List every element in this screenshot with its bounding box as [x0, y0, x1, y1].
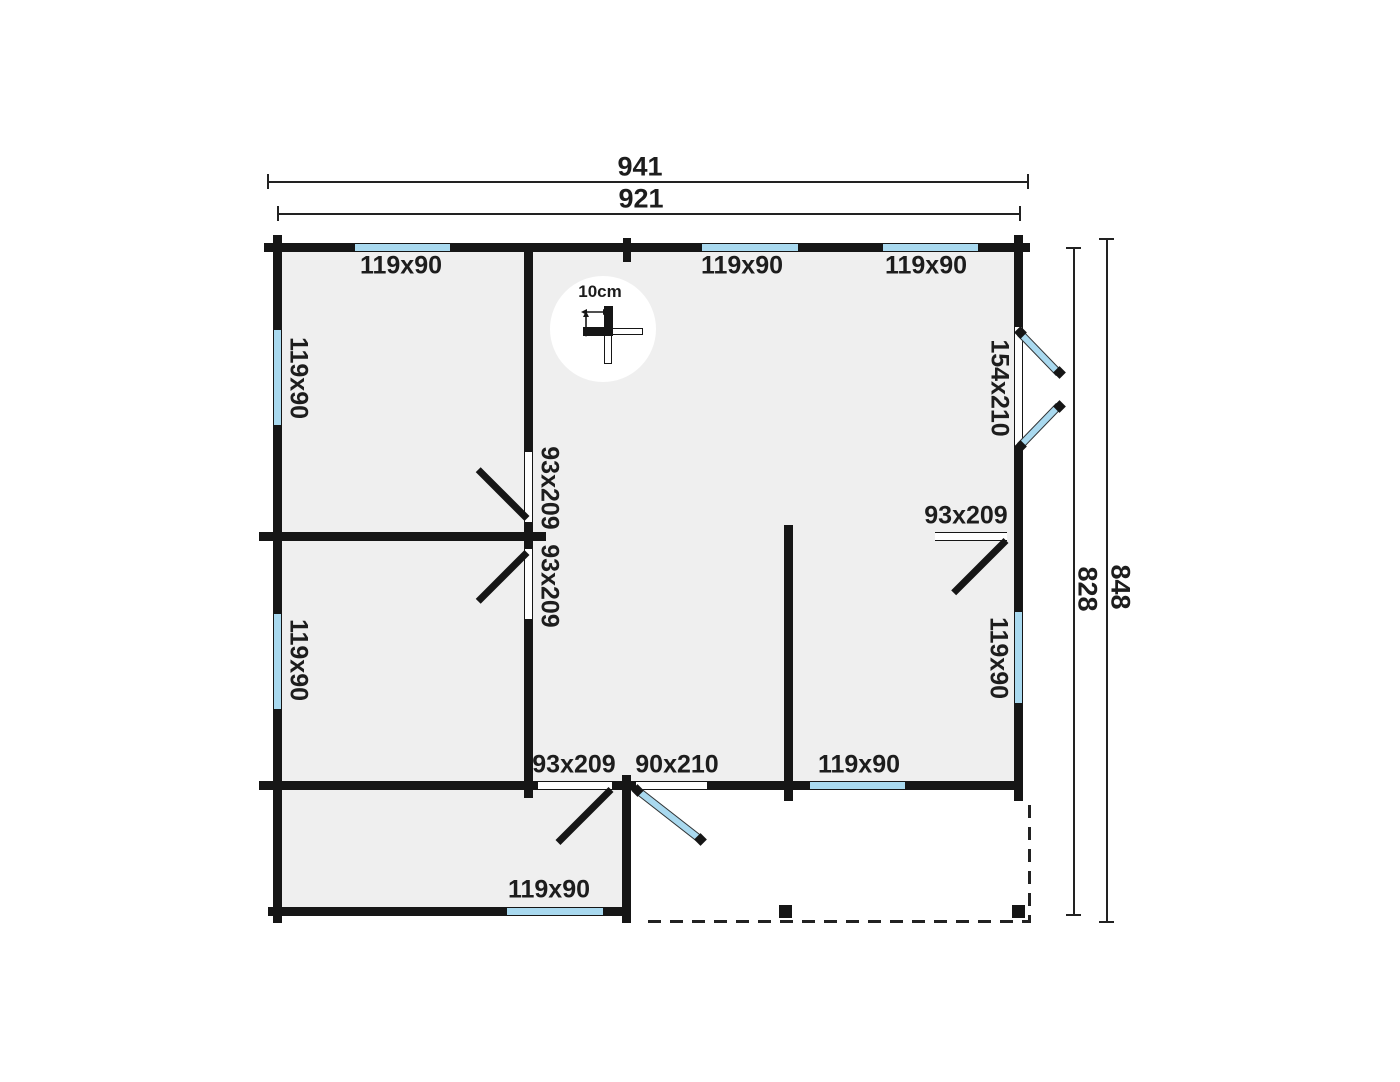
window-label-left-lower: 119x90	[284, 619, 313, 701]
dim-height-inner-label: 828	[1072, 566, 1103, 611]
dim-tick	[267, 174, 269, 189]
window-label-bottom-right-room: 119x90	[818, 751, 900, 780]
door-label-interior-bottom: 93x209	[532, 751, 615, 780]
window-label-top-middle: 119x90	[701, 252, 783, 281]
door-label-hall-upper: 93x209	[535, 446, 564, 529]
dim-tick	[1066, 914, 1081, 916]
terrace-dashed-right	[1028, 805, 1031, 923]
door-label-room-right: 93x209	[924, 502, 1007, 531]
wall-top-tick	[623, 238, 631, 262]
window-bottom-right-room	[810, 781, 905, 790]
door-opening-entrance	[636, 781, 707, 790]
dim-tick	[1019, 206, 1021, 221]
scale-label: 10cm	[578, 282, 621, 302]
scale-wall-thin-vertical	[604, 335, 612, 364]
dim-tick	[1027, 174, 1029, 189]
dim-tick	[1066, 247, 1081, 249]
wall-hall-vertical-mid	[524, 522, 533, 549]
window-label-left-upper: 119x90	[284, 337, 313, 419]
terrace-post-left	[779, 905, 792, 918]
window-label-top-left: 119x90	[360, 252, 442, 281]
dim-width-inner-label: 921	[618, 184, 663, 215]
terrace-dashed-bottom	[648, 920, 1031, 923]
wall-hall-vertical-top	[524, 252, 533, 452]
dim-width-outer-label: 941	[617, 152, 662, 183]
dim-height-outer-label: 848	[1105, 564, 1136, 609]
door-leaf-entrance	[635, 787, 703, 843]
scale-arrows-icon	[578, 303, 614, 339]
window-left-upper	[273, 330, 282, 425]
door-leaf-double-lower	[1017, 403, 1062, 449]
wall-interior-left-horizontal	[259, 532, 546, 541]
dim-tick	[1099, 921, 1114, 923]
wall-entry-vertical	[622, 775, 631, 923]
door-opening-room-right	[935, 532, 1007, 541]
window-label-bottom-left-room: 119x90	[508, 876, 590, 905]
terrace-post-right	[1012, 905, 1025, 918]
door-label-double-right: 154x210	[985, 339, 1014, 436]
scale-wall-thin-horizontal	[612, 328, 643, 335]
window-bottom-left-room	[507, 907, 603, 916]
wall-interior-left-stub	[259, 781, 273, 790]
dim-tick	[1099, 238, 1114, 240]
door-label-hall-lower: 93x209	[535, 544, 564, 627]
window-label-top-right: 119x90	[885, 252, 967, 281]
window-left-lower	[273, 614, 282, 709]
door-opening-interior-bottom	[538, 781, 612, 790]
window-right-side	[1014, 612, 1023, 703]
dim-tick	[277, 206, 279, 221]
window-label-right-side: 119x90	[984, 617, 1013, 699]
door-opening-double-right	[1014, 327, 1023, 447]
door-label-entrance: 90x210	[635, 751, 718, 780]
wall-right	[1014, 235, 1023, 801]
door-opening-hall-lower	[524, 549, 533, 619]
wall-room-right-vertical	[784, 525, 793, 801]
floor-plan: 941 921 848 828	[0, 0, 1400, 1082]
